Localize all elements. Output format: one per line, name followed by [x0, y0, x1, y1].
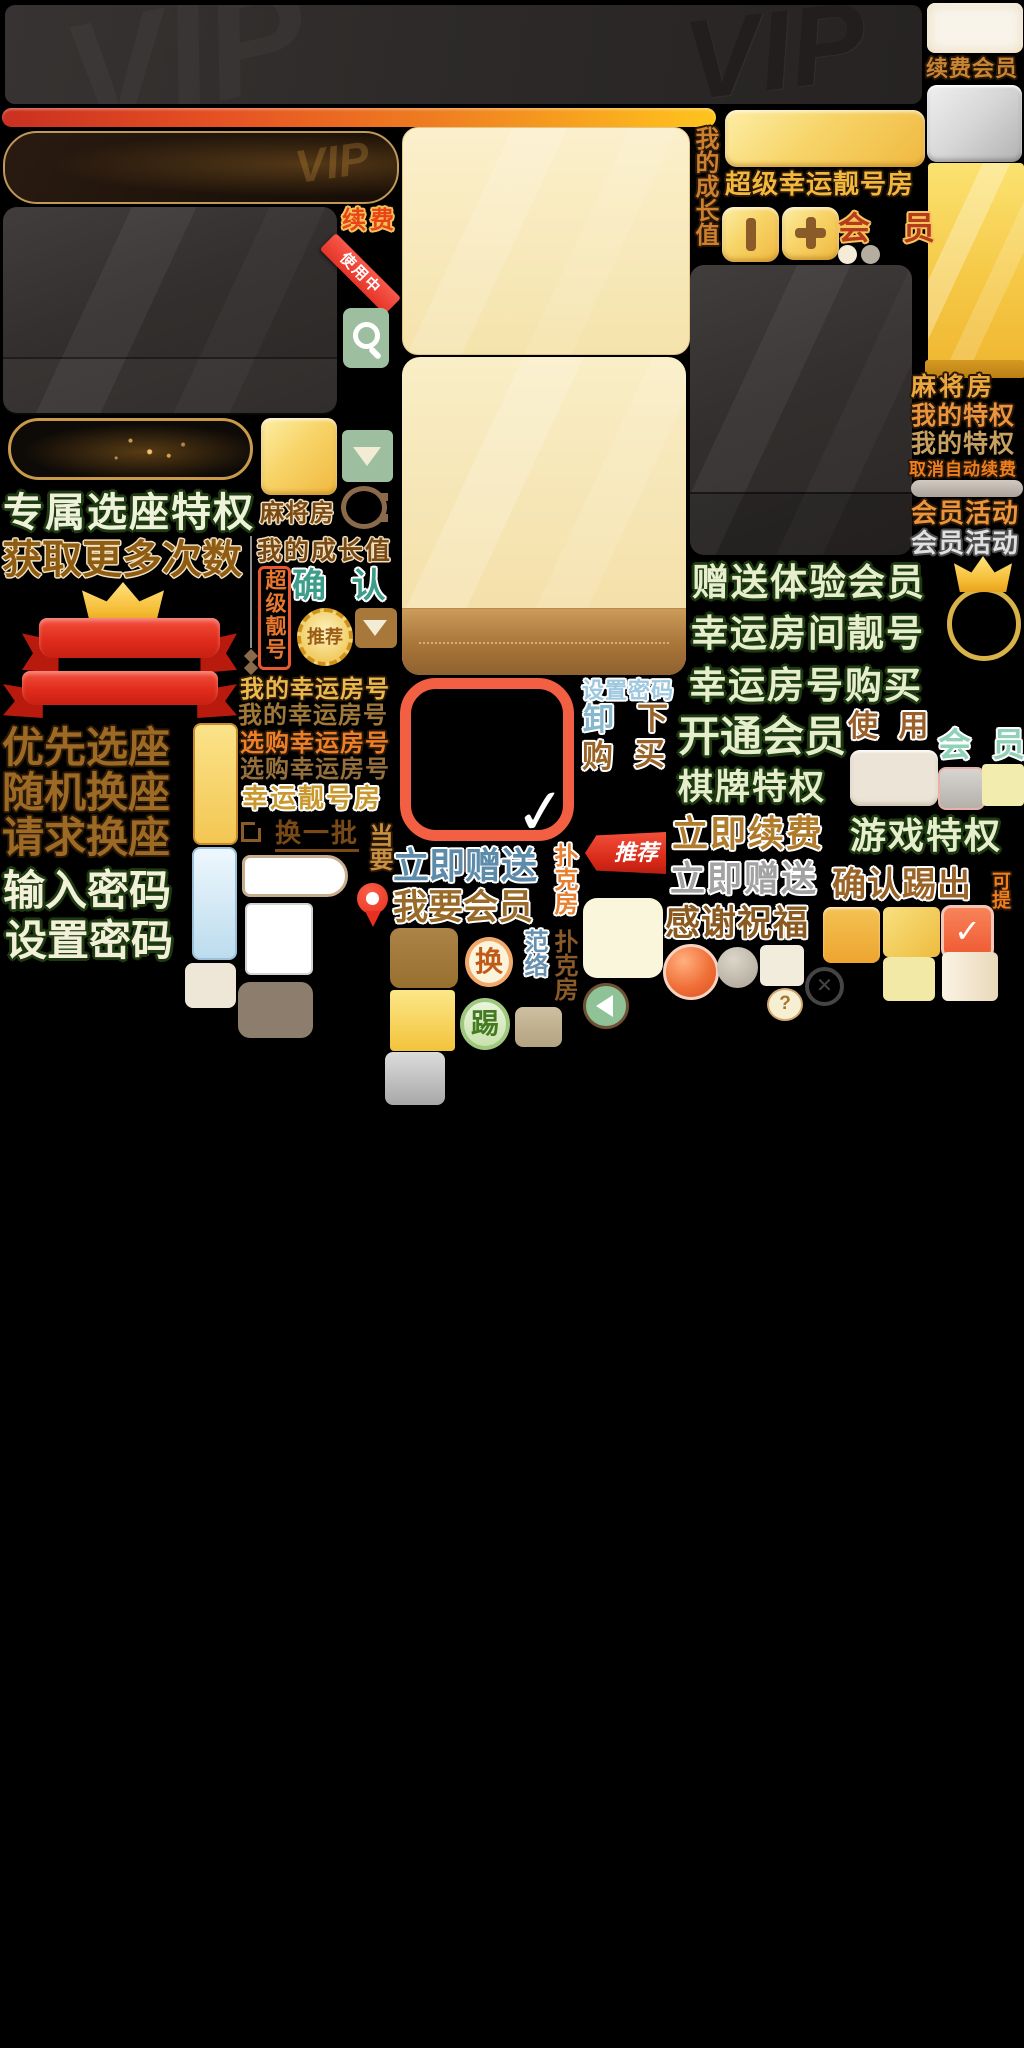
exclusive-seat-label: 专属选座特权: [3, 493, 255, 533]
dot-gray-icon: [861, 245, 880, 264]
beige-button[interactable]: [850, 750, 938, 806]
vip-banner-panel: VIP VIP: [5, 5, 922, 104]
sort-arrows-icon: [243, 651, 259, 675]
my-privilege-styled-label: 我的特权: [911, 404, 1015, 429]
progress-bar: [2, 108, 716, 127]
crown-small-icon: [954, 556, 1012, 592]
gold-panel-footer: [402, 608, 686, 675]
brown-oval-panel: VIP: [3, 131, 399, 204]
search-button[interactable]: [343, 308, 389, 368]
dropdown-button-brown[interactable]: [355, 608, 397, 648]
cream-square-right[interactable]: [760, 945, 804, 986]
selected-frame[interactable]: ✓: [400, 678, 574, 841]
gold-panel-bottom: [402, 357, 686, 675]
lucky-number-room-label: 幸运靓号房: [242, 785, 382, 811]
vip-watermark-icon: VIP: [679, 5, 872, 104]
gray-pill[interactable]: [911, 480, 1023, 497]
chevron-down-brown-icon: [363, 620, 387, 636]
withdraw-vertical-label: 可提: [990, 871, 1009, 913]
minus-icon: [746, 218, 756, 251]
gold-column-panel: [928, 163, 1024, 378]
gift-trial-member-label: 赠送体验会员: [692, 564, 926, 601]
texture-atlas-canvas: VIP VIP 续费会员 我的成长值 超级幸运靓号房 会 员 VIP 续费 使用…: [0, 0, 1024, 2048]
dot-cream-icon: [838, 245, 857, 264]
blue-vertical-bar: [192, 847, 237, 960]
back-arrow-icon: [596, 995, 613, 1017]
random-seat-label: 随机换座: [2, 772, 170, 814]
swap-circle-button[interactable]: 换: [465, 937, 513, 987]
brown-square-button[interactable]: [390, 928, 458, 988]
swap-label: 换: [475, 946, 503, 977]
orange-sphere-icon[interactable]: [663, 944, 719, 1000]
purchase-char-label: 购: [582, 741, 613, 772]
want-member-label: 我要会员: [393, 890, 533, 925]
request-seat-label: 请求换座: [2, 817, 170, 859]
checkbox-check-icon: ✓: [954, 913, 981, 949]
orange-checkbox[interactable]: ✓: [941, 905, 994, 959]
selected-check-icon: ✓: [512, 779, 570, 846]
member-activity-silver-label: 会员活动: [911, 530, 1019, 556]
down-char-label: 下: [637, 703, 668, 734]
renew-member-label: 续费会员: [926, 58, 1018, 80]
my-privilege-plain-label: 我的特权: [911, 432, 1015, 457]
pale-yellow-square-1[interactable]: [982, 764, 1024, 806]
taupe-square[interactable]: [238, 982, 313, 1038]
pale-yellow-square-2[interactable]: [883, 957, 935, 1001]
recommend-tag: 推荐: [585, 832, 666, 874]
cancel-auto-renew-label: 取消自动续费: [909, 461, 1017, 478]
refresh-icon: [241, 822, 261, 842]
change-batch-link[interactable]: 换一批: [275, 820, 359, 852]
poker-room-plain-vertical-label: 扑克房: [551, 929, 575, 1013]
open-member-label: 开通会员: [678, 716, 846, 758]
recommend-tag-label: 推荐: [614, 840, 666, 865]
minus-button[interactable]: [722, 207, 779, 262]
gold-square-bottom[interactable]: [390, 990, 455, 1051]
enter-password-label: 输入密码: [3, 870, 171, 912]
kick-circle-button[interactable]: 踢: [460, 998, 510, 1050]
vip-watermark-small-icon: VIP: [292, 134, 372, 190]
silver-button[interactable]: [927, 85, 1022, 162]
white-rect-button[interactable]: [245, 903, 313, 975]
recommend-seal-button[interactable]: 推荐: [297, 608, 353, 666]
set-password-blue-label: 设置密码: [582, 680, 674, 702]
super-number-vertical-label: 超级靓号: [264, 569, 285, 661]
more-times-label: 获取更多次数: [2, 540, 242, 580]
gray-circle-button[interactable]: [717, 947, 758, 988]
chess-privilege-label: 棋牌特权: [678, 770, 826, 805]
lucky-number-buy-label: 幸运房号购买: [689, 667, 923, 704]
my-lucky-number-styled-label: 我的幸运房号: [240, 678, 390, 702]
cream-gradient-square[interactable]: [942, 952, 998, 1001]
use-label: 使 用: [848, 712, 934, 742]
gray-gradient-square[interactable]: [385, 1052, 445, 1105]
gold-square-button[interactable]: [261, 418, 337, 495]
renew-label: 续费: [342, 209, 398, 233]
dark-card-footer: [3, 357, 337, 415]
give-now-silver-label: 立即赠送: [670, 862, 818, 897]
gold-button-a[interactable]: [823, 907, 880, 963]
renew-now-label: 立即续费: [672, 816, 824, 852]
lucky-room-number-label: 幸运房间靓号: [691, 615, 925, 652]
buy-char-label: 买: [634, 739, 665, 770]
shop-lucky-number-styled-label: 选购幸运房号: [240, 732, 390, 756]
cream-big-square[interactable]: [583, 898, 663, 978]
sparkle-pill-panel: [8, 418, 253, 480]
gold-vertical-bar: [193, 723, 238, 845]
question-icon: ?: [779, 993, 791, 1014]
growth-value-vertical-label: 我的成长值: [692, 126, 716, 268]
gray-button-pink-border[interactable]: [938, 767, 985, 810]
kick-label: 踢: [471, 1008, 499, 1039]
shop-lucky-number-plain-label: 选购幸运房号: [240, 758, 390, 782]
dark-card-panel-right: [690, 265, 912, 555]
rotated-glyphs-label: 当要: [366, 823, 390, 887]
member-chars-label: 会 员: [838, 212, 947, 244]
growth-value-mid-label: 我的成长值: [257, 539, 392, 564]
member-mint-label: 会 员: [938, 728, 1024, 761]
confirm-kick-label: 确认踢出: [832, 868, 972, 902]
recommend-seal-label: 推荐: [307, 627, 343, 647]
location-pin-icon: [357, 883, 388, 928]
super-number-vertical-tag: 超级靓号: [258, 566, 291, 670]
white-pill-button[interactable]: [242, 855, 348, 897]
search-icon: [353, 322, 380, 349]
gold-button-b[interactable]: [883, 907, 940, 957]
dark-card-panel: [3, 207, 337, 413]
khaki-rect-button[interactable]: [515, 1007, 562, 1047]
super-lucky-room-button[interactable]: [725, 110, 925, 167]
red-ribbon-banner-2: [3, 671, 237, 718]
crown-ring-icon: [947, 587, 1021, 661]
vip-watermark-faint-icon: VIP: [52, 5, 320, 104]
in-use-label: 使用中: [336, 250, 384, 298]
close-icon: ✕: [816, 975, 833, 997]
dark-card-right-footer: [690, 492, 912, 557]
poker-room-styled-vertical-label: 扑克房: [551, 843, 575, 931]
beige-square[interactable]: [185, 963, 236, 1008]
cream-panel-top: [402, 127, 690, 355]
thanks-blessing-label: 感谢祝福: [665, 906, 809, 941]
back-circle-button[interactable]: [583, 983, 629, 1029]
dropdown-button-green[interactable]: [342, 430, 393, 482]
plus-button[interactable]: [782, 207, 839, 260]
super-lucky-room-label: 超级幸运靓号房: [725, 171, 914, 197]
notch-ring-icon: [341, 486, 387, 529]
chevron-down-icon: [353, 447, 381, 466]
my-lucky-number-plain-label: 我的幸运房号: [238, 704, 388, 728]
priority-seat-label: 优先选座: [2, 727, 170, 769]
mahjong-room-mid-label: 麻将房: [260, 502, 335, 526]
red-ribbon-banner-1: [22, 618, 237, 673]
divider-line: [250, 536, 252, 648]
game-privilege-label: 游戏特权: [850, 818, 1002, 854]
give-now-blue-label: 立即赠送: [393, 848, 537, 884]
uninstall-char-label: 卸: [583, 704, 614, 735]
help-circle-button[interactable]: ?: [767, 988, 803, 1021]
fan-luo-vertical-label: 范络: [521, 929, 545, 989]
member-activity-styled-label: 会员活动: [911, 500, 1019, 526]
renew-member-button[interactable]: [927, 3, 1023, 53]
confirm-label: 确 认: [292, 569, 393, 603]
mahjong-room-right-label: 麻将房: [911, 375, 995, 400]
close-circle-button[interactable]: ✕: [805, 967, 844, 1006]
set-password-label: 设置密码: [5, 920, 173, 962]
